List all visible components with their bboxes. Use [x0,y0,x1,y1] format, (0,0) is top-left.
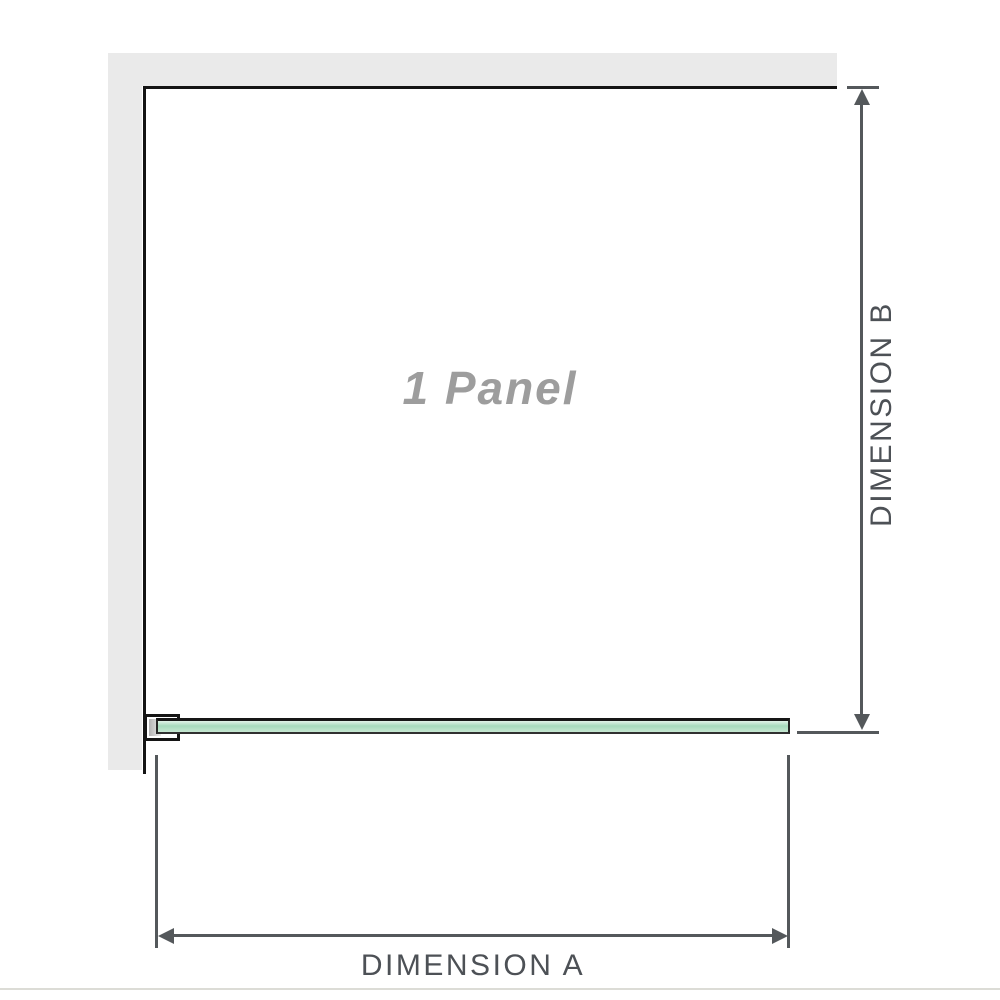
dimension-b-line [860,100,863,716]
arrow-up-icon [854,89,870,105]
wall-edge-left [143,86,146,774]
glass-panel-bar [156,718,790,734]
dimension-a-extension-left [155,755,158,948]
arrow-down-icon [854,714,870,730]
dimension-a-line [172,934,774,937]
diagram-canvas: { "diagram": { "panel_label": "1 Panel",… [0,0,1000,1000]
wall-top [108,53,837,86]
wall-left [108,53,142,770]
dimension-a-extension-right [787,755,790,948]
dimension-b-label: DIMENSION B [865,284,899,544]
baseline-rule [0,988,1000,990]
panel-count-label: 1 Panel [143,362,837,415]
dimension-a-label: DIMENSION A [273,949,673,983]
arrow-left-icon [158,928,174,944]
wall-edge-top [143,86,837,89]
arrow-right-icon [772,928,788,944]
dimension-b-tick-bottom [797,731,879,734]
